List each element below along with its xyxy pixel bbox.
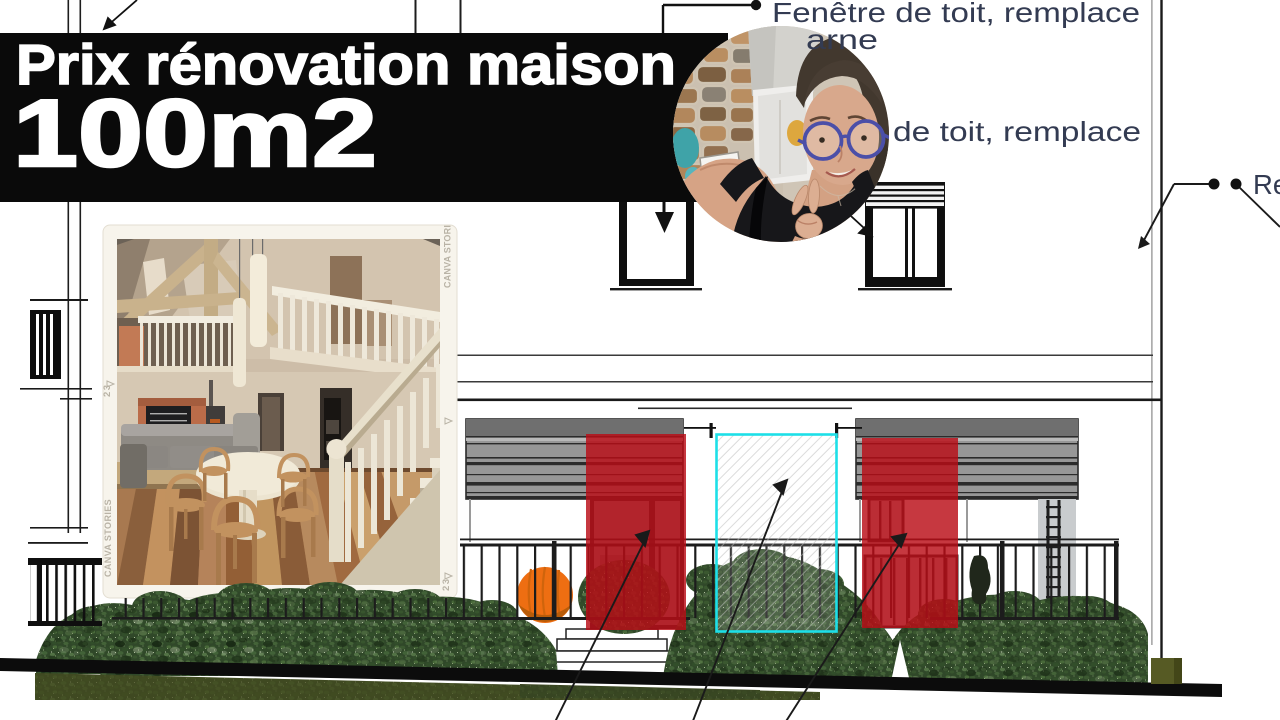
svg-text:23: 23 [441, 577, 452, 591]
svg-text:Rem: Rem [1253, 169, 1280, 200]
svg-text:CANVA STORI: CANVA STORI [443, 225, 453, 288]
svg-text:CANVA STORIES: CANVA STORIES [103, 499, 113, 577]
svg-text:100m2: 100m2 [13, 80, 377, 187]
svg-text:de toit, remplace: de toit, remplace [893, 116, 1141, 147]
svg-text:arne: arne [806, 24, 878, 55]
